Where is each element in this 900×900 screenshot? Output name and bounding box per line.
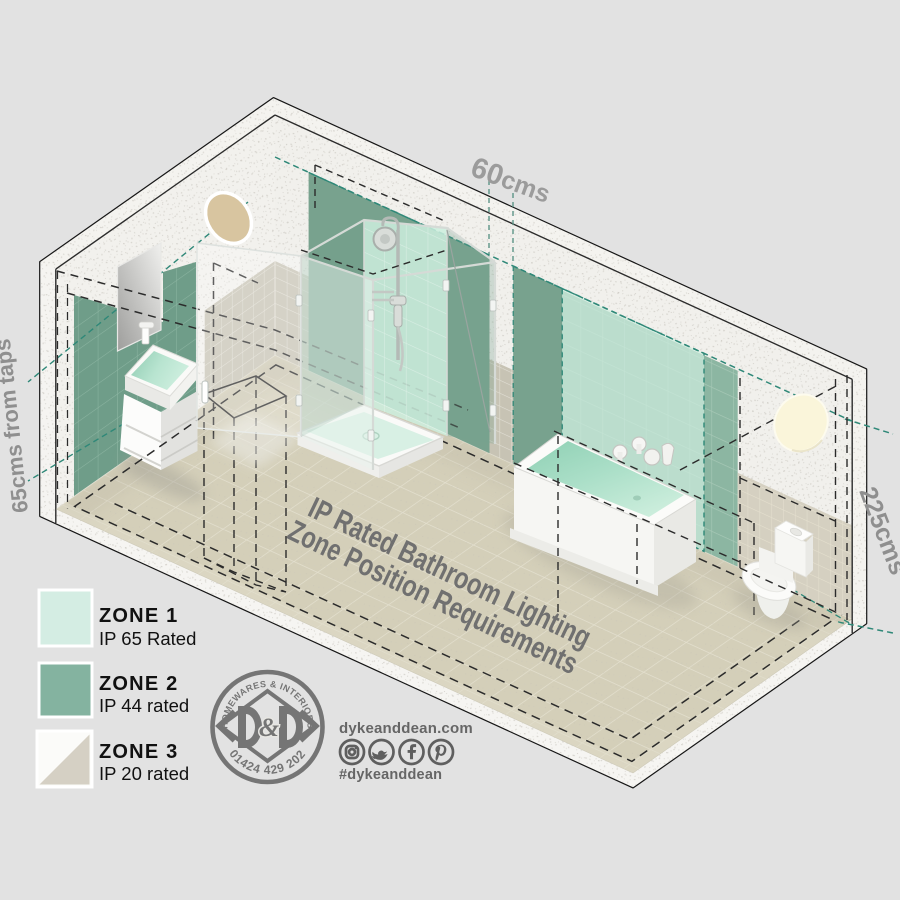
svg-text:dykeanddean.com: dykeanddean.com — [339, 720, 473, 737]
svg-text:ZONE 2: ZONE 2 — [99, 673, 178, 695]
svg-text:#dykeanddean: #dykeanddean — [339, 767, 442, 783]
svg-text:IP 20 rated: IP 20 rated — [99, 763, 189, 784]
svg-text:IP 44 rated: IP 44 rated — [99, 695, 189, 716]
svg-text:IP 65 Rated: IP 65 Rated — [99, 628, 196, 649]
svg-text:ZONE 3: ZONE 3 — [99, 741, 178, 763]
svg-text:&: & — [259, 713, 279, 742]
svg-text:ZONE 1: ZONE 1 — [99, 605, 178, 627]
